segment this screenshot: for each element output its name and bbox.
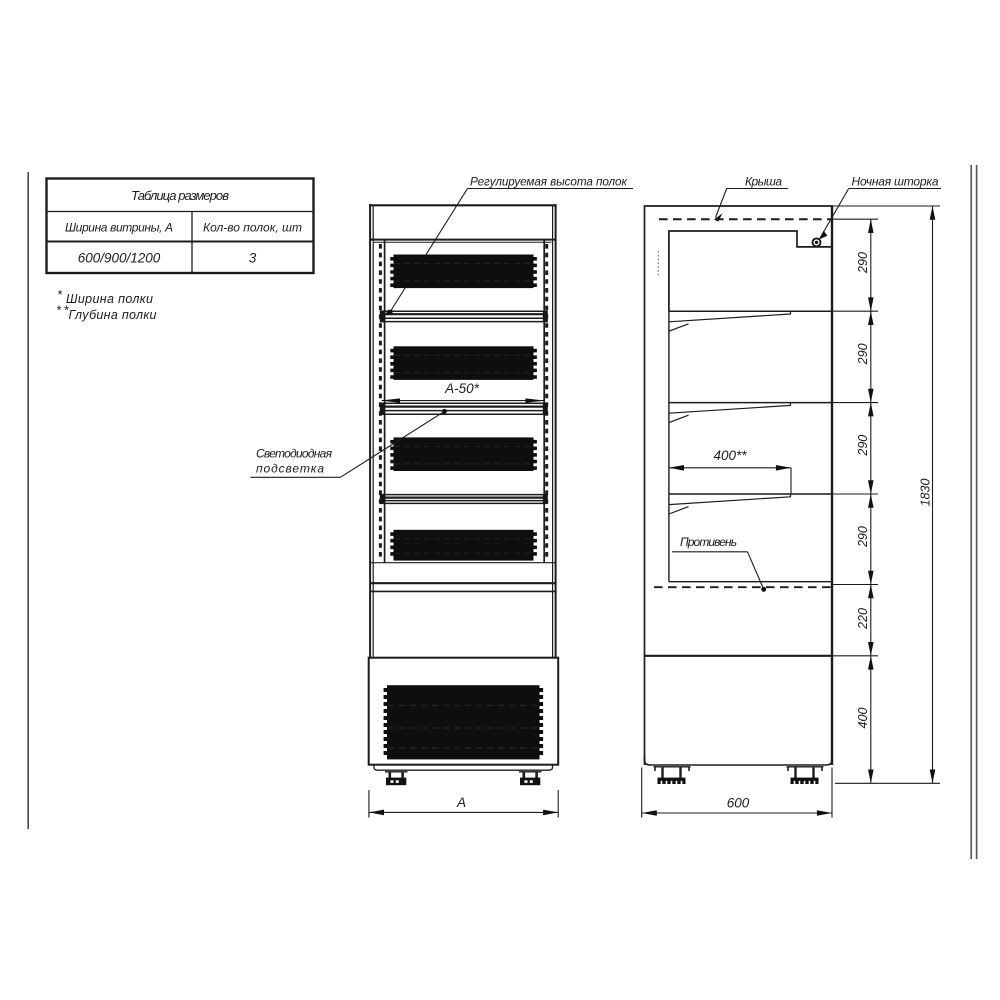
svg-text:600/900/1200: 600/900/1200 [78, 251, 161, 266]
svg-text:Кол-во полок, шт: Кол-во полок, шт [203, 221, 302, 235]
svg-text:Глубина полки: Глубина полки [69, 308, 157, 322]
svg-text:220: 220 [856, 608, 870, 630]
svg-text:290: 290 [856, 252, 870, 274]
svg-text:подсветка: подсветка [256, 462, 324, 476]
svg-text:А-50*: А-50* [444, 381, 480, 396]
svg-text:290: 290 [856, 343, 870, 365]
svg-text:А: А [456, 795, 466, 810]
svg-text:290: 290 [856, 526, 870, 548]
svg-text:Ширина витрины, А: Ширина витрины, А [65, 221, 173, 235]
svg-text:1830: 1830 [919, 479, 933, 507]
svg-text:600: 600 [727, 796, 750, 811]
svg-text:Противень: Противень [680, 535, 737, 549]
svg-text:400: 400 [856, 708, 870, 729]
svg-text:290: 290 [856, 435, 870, 457]
svg-text:Ширина полки: Ширина полки [66, 292, 153, 306]
svg-text:400**: 400** [713, 448, 747, 463]
svg-text:Крыша: Крыша [745, 175, 782, 189]
svg-text:Регулируемая высота полок: Регулируемая высота полок [470, 176, 627, 189]
svg-text:Ночная шторка: Ночная шторка [852, 175, 939, 189]
svg-text:3: 3 [249, 251, 257, 266]
svg-text:Светодиодная: Светодиодная [256, 447, 333, 461]
svg-text:Таблица размеров: Таблица размеров [131, 188, 229, 203]
